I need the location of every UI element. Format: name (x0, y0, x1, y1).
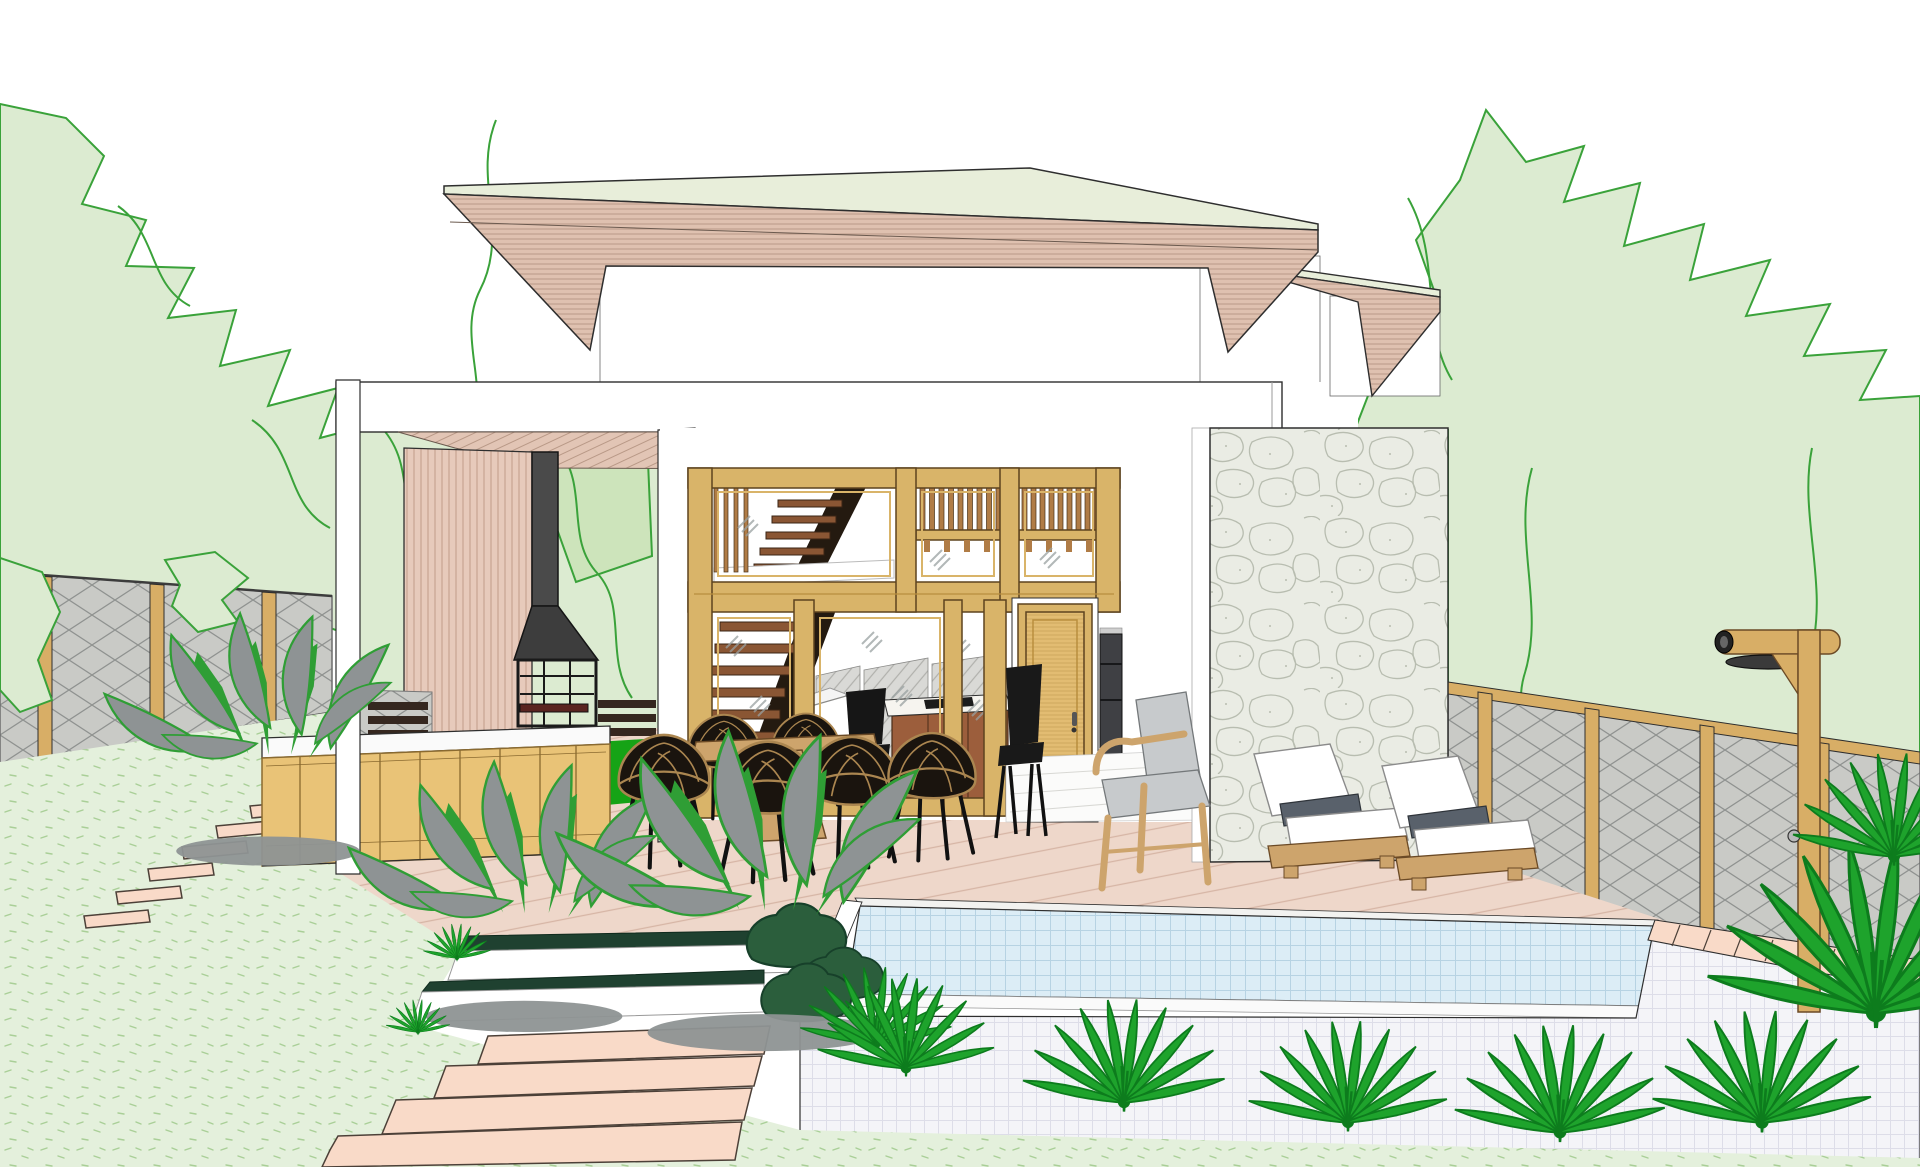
fence-post (1585, 708, 1599, 901)
canopy-left-column (336, 380, 360, 874)
fence-post (1700, 725, 1714, 939)
villa-rendering: Modern two-story tropical villa with gla… (0, 0, 1920, 1167)
scene: Modern two-story tropical villa with gla… (0, 0, 1920, 1167)
shower-arm (1716, 630, 1840, 654)
door-handle (1072, 712, 1077, 726)
fire-log (520, 704, 588, 712)
terrace-canopy (336, 382, 1282, 432)
chimney (532, 452, 558, 606)
